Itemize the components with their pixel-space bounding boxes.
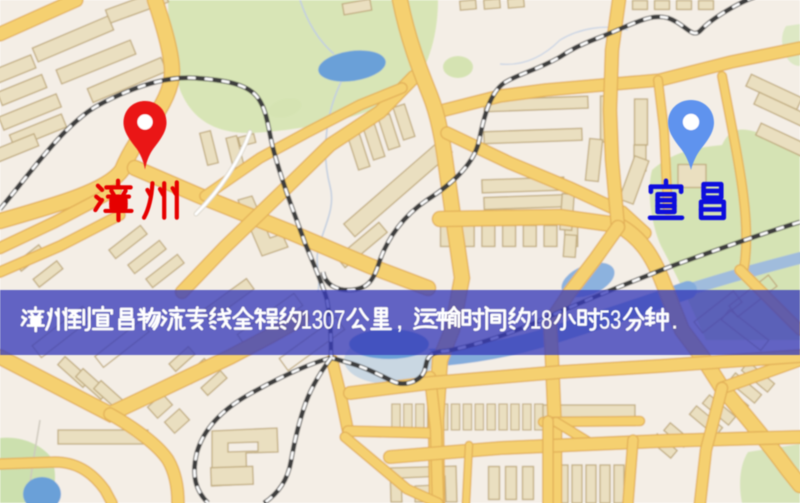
svg-text:1307: 1307 [301, 305, 345, 335]
svg-text:53: 53 [599, 305, 621, 335]
svg-text:,: , [396, 305, 403, 335]
svg-text:18: 18 [530, 305, 552, 335]
svg-text:.: . [671, 305, 678, 335]
